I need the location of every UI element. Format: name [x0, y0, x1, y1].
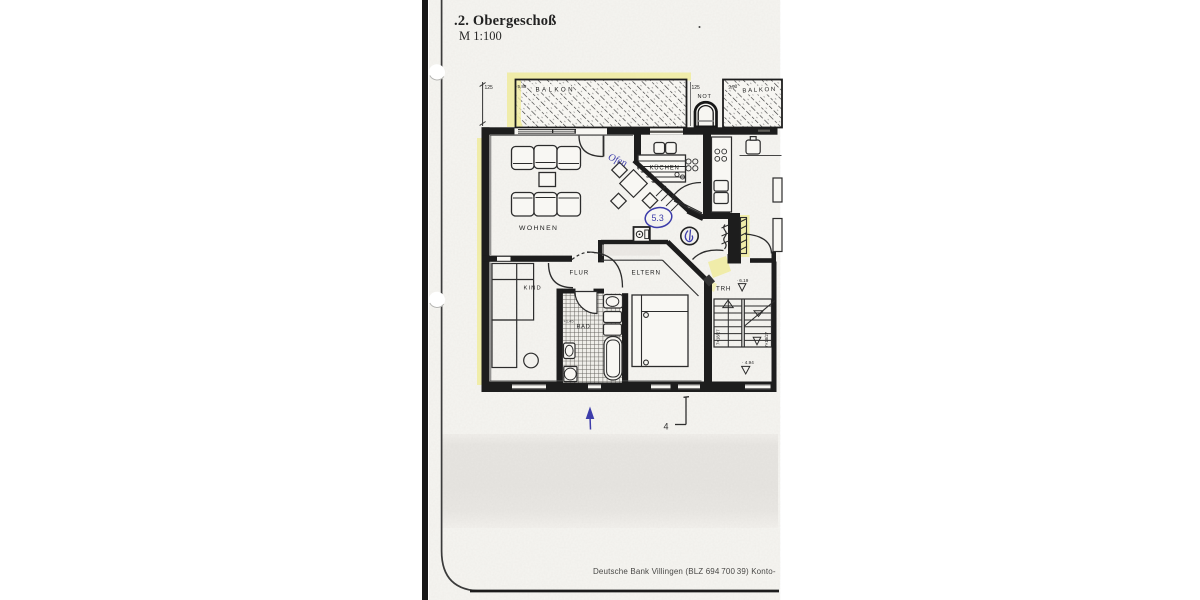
svg-text:BALKON: BALKON — [536, 87, 576, 94]
svg-text:BAD: BAD — [577, 325, 591, 331]
svg-text:7×18/27: 7×18/27 — [716, 329, 721, 345]
svg-text:TRH: TRH — [716, 286, 731, 293]
svg-text:WOHNEN: WOHNEN — [519, 225, 558, 232]
svg-text:+1,45: +1,45 — [564, 319, 575, 324]
svg-text:FLUR: FLUR — [570, 271, 590, 277]
svg-text:5,88: 5,88 — [518, 84, 527, 89]
svg-text:· 6.19: · 6.19 — [737, 278, 749, 283]
svg-text:125: 125 — [692, 85, 701, 91]
svg-text:ELTERN: ELTERN — [632, 270, 661, 277]
svg-text:NOT: NOT — [698, 94, 712, 100]
svg-text:125: 125 — [485, 85, 494, 91]
svg-text:KIND: KIND — [524, 286, 542, 292]
svg-text:KÜCHEN: KÜCHEN — [650, 165, 680, 172]
svg-text:4: 4 — [664, 422, 669, 432]
svg-text:5.3: 5.3 — [652, 213, 664, 223]
svg-text:7×18/27: 7×18/27 — [764, 331, 769, 347]
svg-text:· 4.94: · 4.94 — [742, 360, 754, 365]
